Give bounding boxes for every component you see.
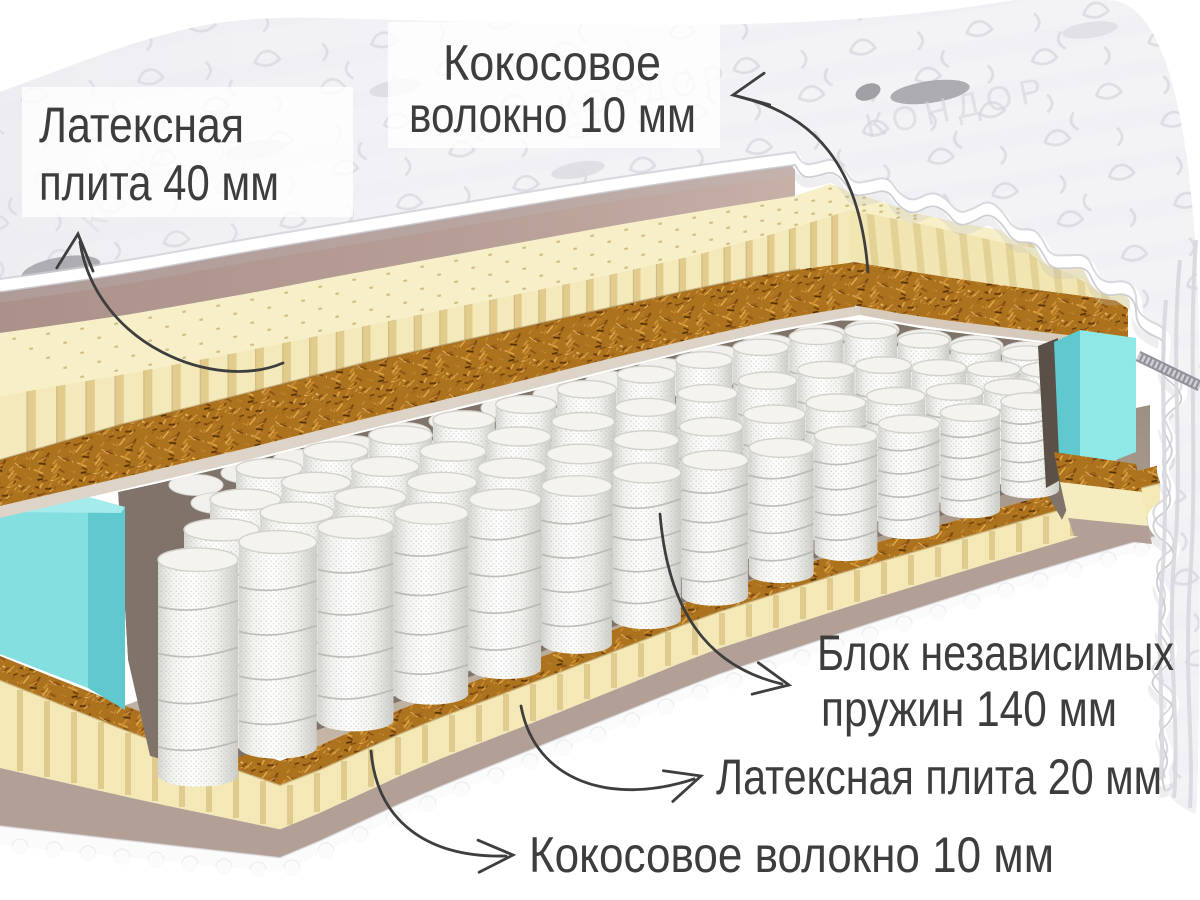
svg-text:плита 40 мм: плита 40 мм (39, 155, 279, 211)
svg-text:волокно 10 мм: волокно 10 мм (409, 87, 696, 143)
svg-text:Блок независимых: Блок независимых (817, 625, 1174, 681)
svg-text:Кокосовое волокно 10 мм: Кокосовое волокно 10 мм (529, 827, 1054, 883)
svg-text:пружин 140 мм: пружин 140 мм (821, 681, 1117, 737)
svg-text:Латексная плита 20 мм: Латексная плита 20 мм (716, 749, 1162, 805)
svg-text:Латексная: Латексная (39, 97, 244, 153)
svg-text:Кокосовое: Кокосовое (443, 35, 661, 91)
